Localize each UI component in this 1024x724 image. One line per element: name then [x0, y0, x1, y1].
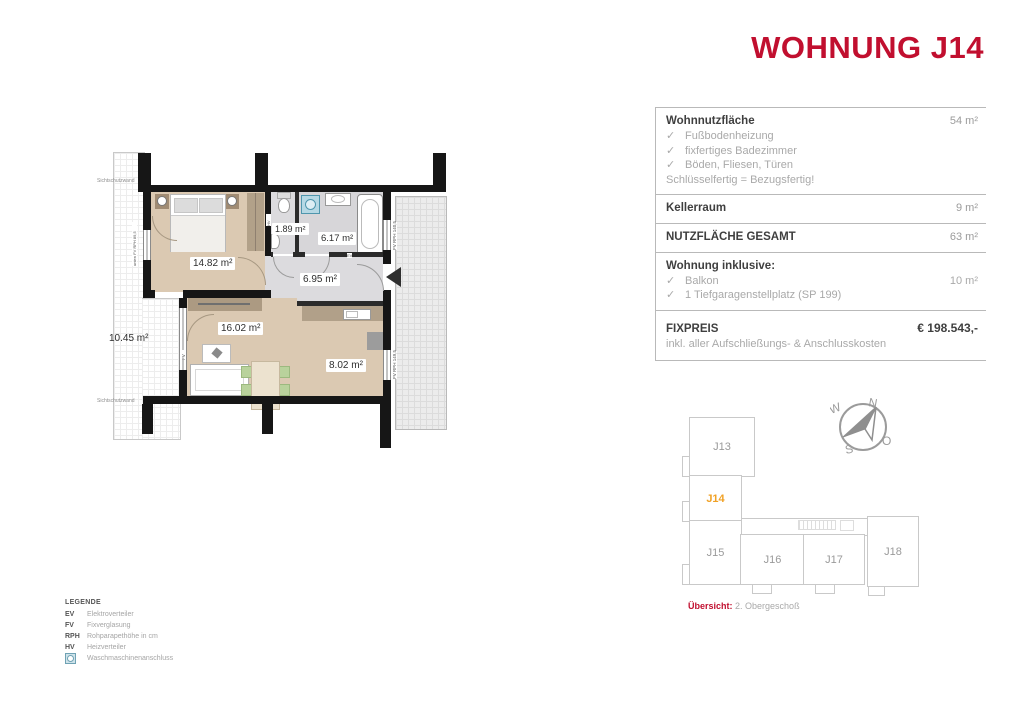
wall	[383, 192, 391, 220]
wall	[179, 370, 187, 396]
keller-value: 9 m²	[956, 202, 978, 214]
check-icon: ✓	[666, 158, 678, 173]
legend-label: Waschmaschinenanschluss	[87, 655, 173, 662]
compass-s: S	[844, 442, 855, 457]
floor-plan: 14.82 m² 1.89 m² 6.17 m² 6.95 m² 16.02 m…	[95, 138, 465, 453]
bath-window	[383, 220, 391, 250]
bed	[170, 194, 226, 252]
legend-label: Fixverglasung	[87, 622, 131, 629]
feature-label: fixfertiges Badezimmer	[685, 144, 797, 159]
legend-key: EV	[65, 611, 87, 618]
brochure-page: WOHNUNG J14 Wohnnutzfläche 54 m² ✓ Fußbo…	[0, 0, 1024, 724]
legend-row: EV Elektroverteiler	[65, 609, 173, 620]
bathtub	[357, 194, 383, 256]
unit-j13: J13	[689, 417, 755, 477]
bath-sink	[325, 193, 351, 206]
unit-j16: J16	[740, 534, 805, 585]
wall	[179, 298, 187, 308]
legend-row-washing-machine: Waschmaschinenanschluss	[65, 653, 173, 664]
stairs-hatch	[798, 520, 836, 530]
fixpreis-label: FIXPREIS	[666, 322, 718, 337]
kitchen-appliance	[367, 332, 383, 350]
elevator-shape	[840, 520, 854, 531]
overview-caption-text: 2. Obergeschoß	[735, 601, 800, 611]
section-nutzflaeche-gesamt: NUTZFLÄCHE GESAMT 63 m²	[656, 223, 986, 252]
room-label-bedroom: 14.82 m²	[190, 257, 235, 270]
window-annotation: FV RPH 140,5	[392, 222, 397, 250]
gesamt-value: 63 m²	[950, 231, 978, 243]
section-kellerraum: Kellerraum 9 m²	[656, 194, 986, 223]
wardrobe	[247, 193, 264, 251]
compass-w: W	[830, 400, 843, 417]
wall	[329, 252, 383, 257]
window-annotation: unten FV RPH 89,5	[132, 222, 137, 266]
check-icon: ✓	[666, 274, 678, 289]
wall	[143, 290, 155, 298]
wall	[293, 252, 305, 257]
room-label-balcony: 10.45 m²	[106, 332, 151, 345]
wohnnutz-note: Schlüsselfertig = Bezugsfertig!	[666, 173, 986, 187]
room-label-wc: 1.89 m²	[272, 223, 309, 235]
inklusive-item: ✓ Balkon 10 m²	[666, 274, 986, 289]
fixpreis-note: inkl. aller Aufschließungs- & Anschlussk…	[666, 337, 986, 351]
room-label-living: 16.02 m²	[218, 322, 263, 335]
legend-label: Heizverteiler	[87, 644, 126, 651]
privacy-wall-label: Sichtschutzwand	[97, 398, 135, 404]
kitchen-sink	[343, 309, 371, 320]
kitchen-window	[383, 350, 391, 380]
wall	[142, 404, 153, 434]
legend-key: HV	[65, 644, 87, 651]
keller-label: Kellerraum	[666, 201, 726, 216]
wall	[383, 250, 391, 264]
inklusive-item-label: Balkon	[685, 274, 719, 289]
window-annotation: FV RPH 149,5	[392, 351, 397, 379]
washing-machine-icon	[301, 195, 320, 214]
inklusive-item-label: 1 Tiefgaragenstellplatz (SP 199)	[685, 288, 841, 303]
feature-item: ✓ Fußbodenheizung	[666, 129, 986, 144]
inklusive-item: ✓ 1 Tiefgaragenstellplatz (SP 199)	[666, 288, 986, 303]
wall	[380, 404, 391, 448]
wall	[143, 260, 151, 290]
unit-j18: J18	[867, 516, 919, 587]
fixpreis-value: € 198.543,-	[917, 321, 978, 335]
coffee-table	[202, 344, 231, 363]
legend-key: RPH	[65, 633, 87, 640]
nightstand	[225, 194, 239, 209]
gesamt-label: NUTZFLÄCHE GESAMT	[666, 230, 796, 245]
compass-o: O	[882, 434, 891, 448]
nightstand	[155, 194, 169, 209]
section-wohnnutzflaeche: Wohnnutzfläche 54 m² ✓ Fußbodenheizung ✓…	[656, 107, 986, 194]
balcony-area	[113, 152, 145, 440]
unit-j14-highlighted: J14	[689, 475, 742, 522]
wall	[297, 301, 383, 306]
toilet	[278, 198, 290, 213]
compass-icon: N W S O	[830, 395, 900, 457]
wall	[262, 404, 273, 434]
bedroom-window	[143, 230, 151, 260]
privacy-wall-label: Sichtschutzwand	[97, 178, 135, 184]
check-icon: ✓	[666, 288, 678, 303]
unit-j17: J17	[803, 534, 865, 585]
section-fixpreis: FIXPREIS € 198.543,- inkl. aller Aufschl…	[656, 310, 986, 361]
wall	[433, 153, 446, 185]
legend-label: Elektroverteiler	[87, 611, 134, 618]
legend-label: Rohparapethöhe in cm	[87, 633, 158, 640]
check-icon: ✓	[666, 144, 678, 159]
inklusive-item-value: 10 m²	[950, 274, 978, 289]
building-overview: J13 J14 J15 J16 J17 J18 N W S O Übersich…	[680, 393, 950, 628]
wall	[138, 185, 446, 192]
wall	[183, 290, 271, 298]
legend-title: LEGENDE	[65, 599, 173, 606]
ev-annotation: EV	[347, 253, 352, 258]
overview-caption-label: Übersicht:	[688, 601, 733, 611]
living-balcony-door	[179, 308, 187, 370]
stairwell-area	[395, 196, 447, 430]
feature-item: ✓ fixfertiges Badezimmer	[666, 144, 986, 159]
wohnnutz-value: 54 m²	[950, 115, 978, 127]
entrance-arrow-icon	[386, 267, 401, 287]
feature-label: Fußbodenheizung	[685, 129, 774, 144]
room-label-kitchen: 8.02 m²	[326, 359, 366, 372]
wall	[138, 153, 151, 185]
legend: LEGENDE EV Elektroverteiler FV Fixvergla…	[65, 599, 173, 664]
wall	[143, 192, 151, 230]
inklusive-label: Wohnung inklusive:	[666, 259, 775, 274]
legend-key: FV	[65, 622, 87, 629]
page-title: WOHNUNG J14	[751, 30, 984, 66]
washing-machine-icon	[65, 653, 76, 664]
wohnnutz-label: Wohnnutzfläche	[666, 114, 755, 129]
unit-j15: J15	[689, 520, 742, 585]
room-label-hall: 6.95 m²	[300, 273, 340, 286]
hv-annotation: HV	[266, 214, 271, 226]
check-icon: ✓	[666, 129, 678, 144]
wall	[143, 396, 391, 404]
feature-label: Böden, Fliesen, Türen	[685, 158, 793, 173]
info-table: Wohnnutzfläche 54 m² ✓ Fußbodenheizung ✓…	[655, 107, 986, 361]
wall	[255, 153, 268, 185]
overview-caption: Übersicht: 2. Obergeschoß	[688, 601, 800, 611]
sideboard	[188, 298, 262, 311]
wc-sink	[271, 234, 280, 249]
wall	[383, 290, 391, 350]
legend-row: RPH Rohparapethöhe in cm	[65, 631, 173, 642]
legend-row: FV Fixverglasung	[65, 620, 173, 631]
feature-item: ✓ Böden, Fliesen, Türen	[666, 158, 986, 173]
section-inklusive: Wohnung inklusive: ✓ Balkon 10 m² ✓ 1 Ti…	[656, 252, 986, 310]
room-label-bath: 6.17 m²	[318, 232, 356, 245]
legend-row: HV Heizverteiler	[65, 642, 173, 653]
window-annotation: FV	[181, 350, 186, 360]
